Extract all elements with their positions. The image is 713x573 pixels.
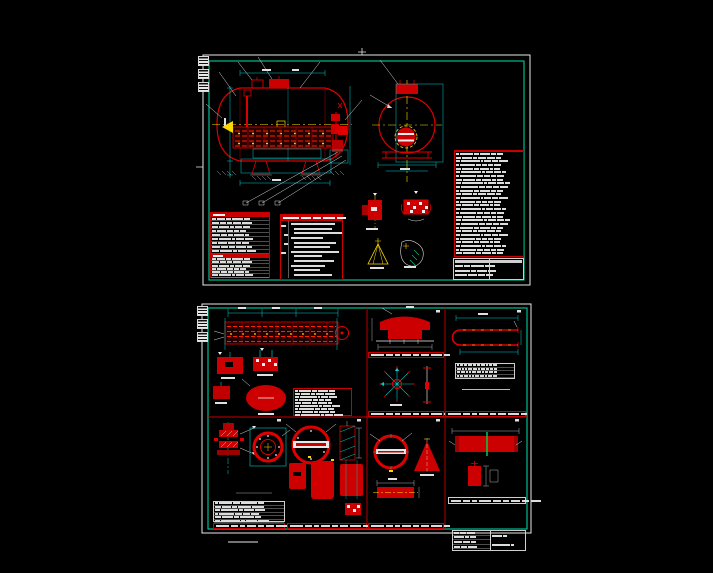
title-block-left-rows	[453, 531, 491, 550]
technical-requirements-table	[280, 214, 343, 280]
spec-rows-bottom	[211, 258, 269, 278]
title-block-top-sheet	[453, 258, 524, 280]
saddle-panel-title-strip	[368, 352, 444, 358]
cover-and-gusset-panel	[370, 433, 440, 498]
flange-panel-title-strip	[287, 523, 367, 529]
tube-schedule-grid	[455, 363, 515, 379]
manhole-assembly-detail	[214, 422, 290, 493]
vessel-end-view	[370, 60, 443, 182]
spec-characteristics-table	[210, 212, 270, 278]
shaft-panel-strip	[448, 497, 526, 504]
support-ring-view	[379, 366, 431, 406]
title-block-bottom-sheet	[452, 530, 526, 551]
flange-notes	[293, 500, 343, 503]
coil-parts-rows	[294, 389, 351, 416]
cover-notes	[374, 505, 424, 509]
weld-detail-b	[401, 191, 430, 221]
vessel-front-view	[206, 57, 352, 186]
cover-panel-title-strip	[368, 523, 444, 529]
manhole-panel-title-strip	[213, 523, 285, 529]
coil-parts-table	[293, 388, 352, 416]
zone-marker-strip-top	[198, 56, 210, 95]
coil-notes	[318, 360, 362, 364]
heating-coil-bundle	[222, 121, 339, 148]
nozzle-detail-a	[362, 193, 382, 230]
gusset-detail	[401, 240, 424, 268]
requirements-index-column	[281, 221, 289, 278]
zone-marker-strip-bottom	[197, 306, 209, 345]
drawing-linework	[0, 0, 713, 573]
parts-list-table	[454, 150, 524, 257]
ring-panel-title-strip	[368, 411, 444, 417]
coil-part-details	[213, 350, 286, 415]
tube-note	[462, 384, 510, 390]
shaft-parts-panel	[449, 428, 522, 486]
utube-panel-title-strip	[445, 411, 526, 417]
u-tube-detail	[453, 313, 521, 355]
saddle-detail-view	[372, 306, 434, 350]
manhole-labels	[232, 472, 266, 482]
cad-model-space: const data = JSON.parse(document.getElem…	[0, 0, 713, 573]
parts-list-rows	[455, 152, 523, 255]
requirements-text	[289, 221, 344, 278]
cone-detail	[368, 238, 388, 269]
manhole-parts-table	[213, 501, 285, 522]
spec-rows-top	[211, 217, 269, 254]
title-block-right-rows	[491, 531, 525, 550]
coil-assembly-view	[214, 307, 349, 355]
